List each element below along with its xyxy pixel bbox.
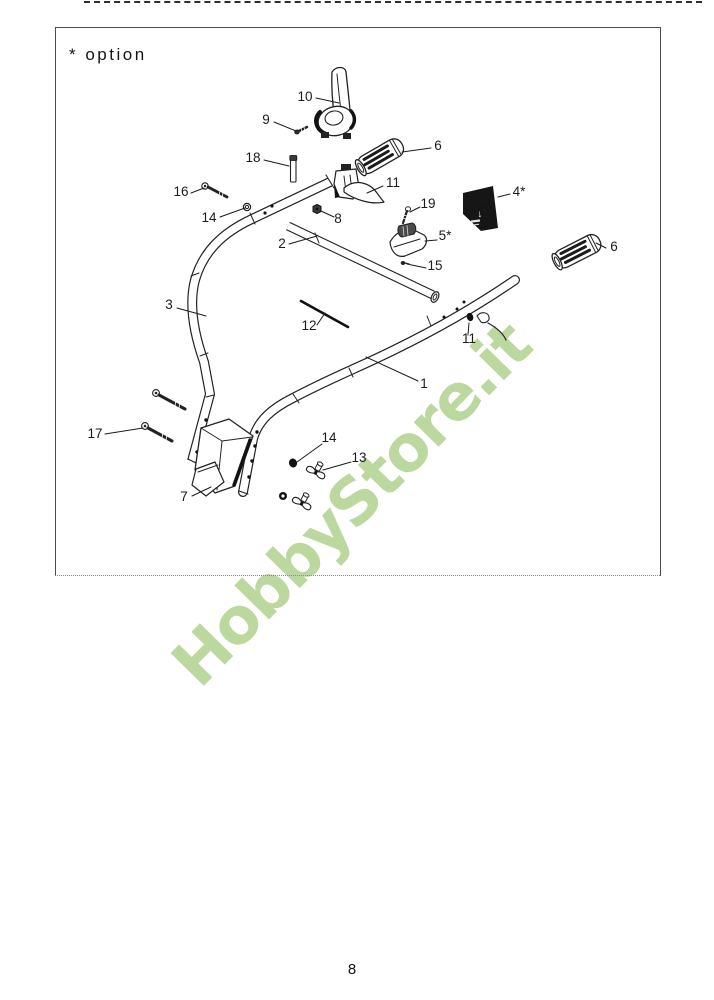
callout-leader-4* xyxy=(498,194,510,197)
bolt-17-upper xyxy=(153,390,185,409)
callout-label-6: 6 xyxy=(610,239,618,254)
callout-label-5*: 5* xyxy=(439,228,453,243)
exploded-parts-diagram: START ↓ xyxy=(0,0,714,1000)
handle-grip-right xyxy=(550,232,604,272)
callout-leader-6 xyxy=(402,148,431,152)
callout-label-10: 10 xyxy=(297,89,312,104)
callout-label-18: 18 xyxy=(245,150,260,165)
screw-19 xyxy=(403,207,411,223)
stop-switch xyxy=(390,223,426,256)
handlebar-tube-main xyxy=(239,280,515,494)
callout-label-4*: 4* xyxy=(513,184,527,199)
callout-label-7: 7 xyxy=(180,489,188,504)
callout-label-1: 1 xyxy=(420,376,428,391)
callout-leader-13 xyxy=(323,462,351,470)
washer-14 xyxy=(243,203,250,210)
page-number: 8 xyxy=(0,961,704,978)
manual-page: { "page": { "option_note": "* option", "… xyxy=(0,0,714,1000)
handle-grip-left xyxy=(353,136,407,178)
bolt-17-lower xyxy=(142,423,172,441)
grommet-solid xyxy=(288,457,299,468)
callout-leader-18 xyxy=(264,160,289,166)
callout-label-13: 13 xyxy=(351,450,366,465)
callouts: 1091861614118194*25*1563121111714137 xyxy=(87,89,617,504)
callout-leader-12 xyxy=(317,313,325,325)
start-decal: START ↓ xyxy=(463,186,498,231)
lockout-lever xyxy=(315,68,356,140)
callout-leader-17 xyxy=(105,428,143,434)
wing-screw-lower xyxy=(292,489,316,511)
callout-label-14: 14 xyxy=(201,210,217,225)
callout-leader-16 xyxy=(191,188,204,193)
grommet-ring xyxy=(279,492,287,500)
callout-label-17: 17 xyxy=(87,426,102,441)
callout-label-9: 9 xyxy=(262,112,270,127)
callout-label-2: 2 xyxy=(278,236,286,251)
callout-leader-9 xyxy=(274,122,296,131)
callout-leader-19 xyxy=(410,207,420,212)
bolt-16 xyxy=(202,183,227,198)
callout-label-19: 19 xyxy=(420,196,435,211)
callout-leader-14 xyxy=(220,208,245,217)
callout-label-6: 6 xyxy=(434,138,442,153)
screw-9 xyxy=(295,127,307,134)
callout-leader-1 xyxy=(366,357,418,381)
nut-8 xyxy=(313,205,321,214)
callout-label-14: 14 xyxy=(321,430,337,445)
callout-leader-8 xyxy=(321,211,334,217)
callout-leader-14 xyxy=(297,444,322,462)
callout-label-16: 16 xyxy=(173,184,188,199)
pin-18 xyxy=(290,156,297,183)
callout-label-12: 12 xyxy=(301,318,316,333)
callout-leader-15 xyxy=(407,264,426,268)
callout-label-3: 3 xyxy=(165,297,173,312)
callout-label-11: 11 xyxy=(386,175,400,190)
callout-label-11: 11 xyxy=(462,331,476,346)
callout-label-8: 8 xyxy=(334,211,342,226)
callout-label-15: 15 xyxy=(427,258,442,273)
